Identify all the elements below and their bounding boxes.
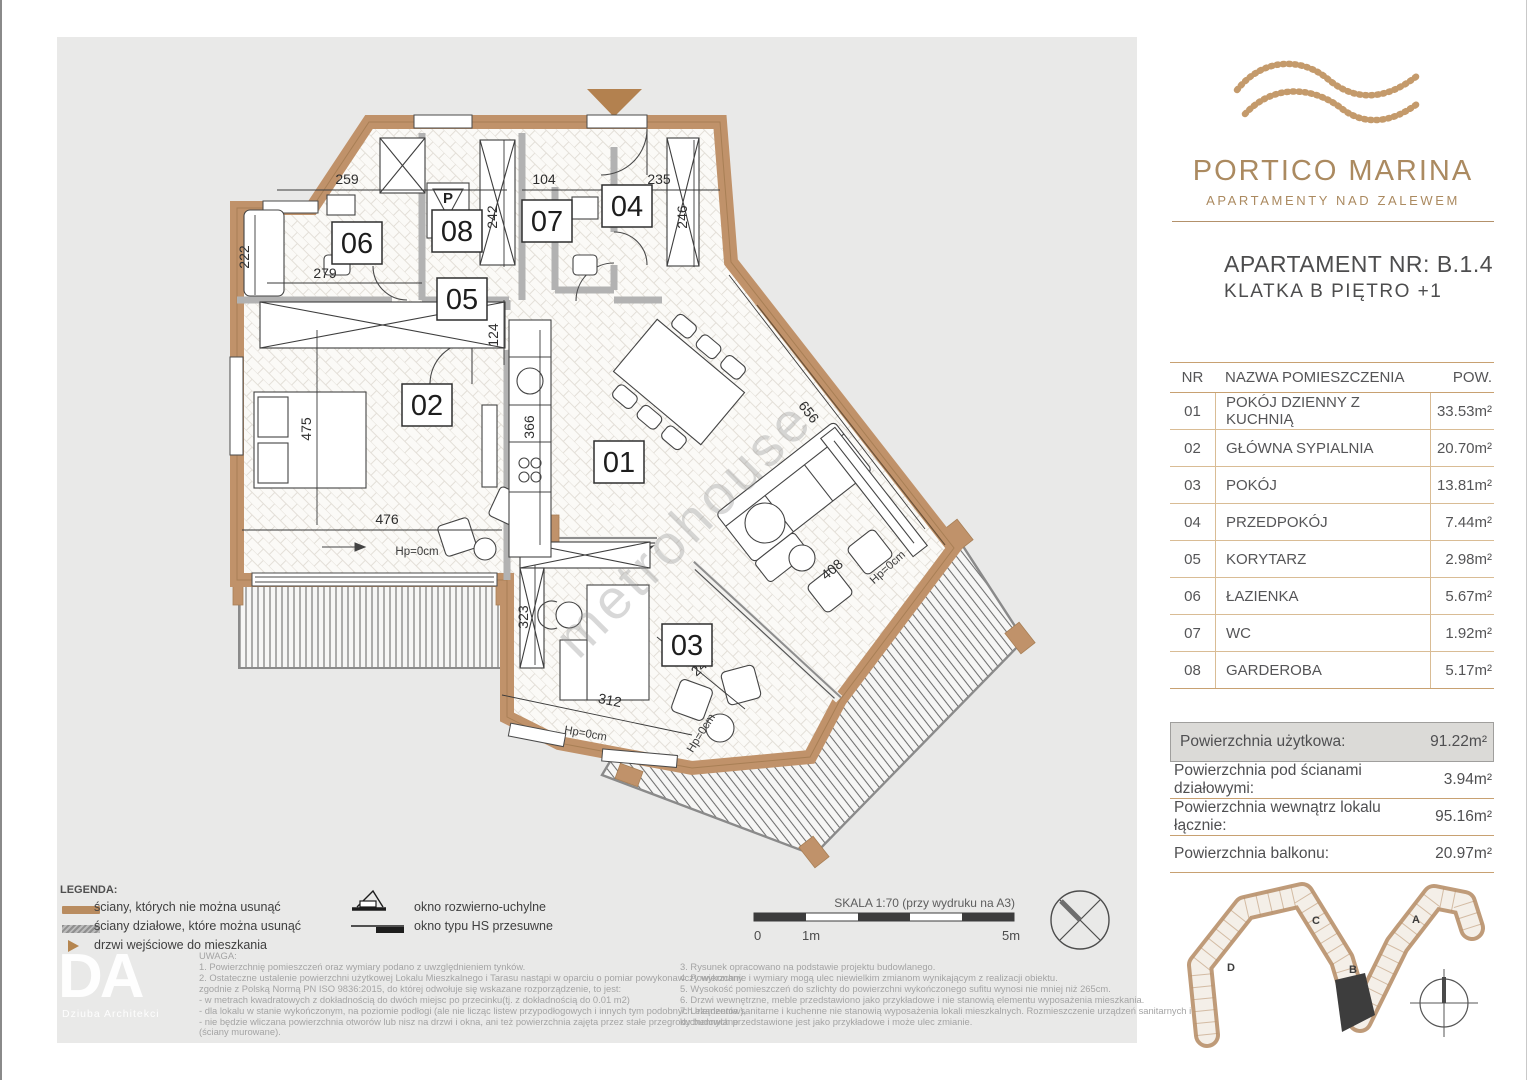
note-line: - dla lokalu w stanie wykończonym, na po… bbox=[199, 1006, 669, 1017]
legend-hs-window: okno typu HS przesuwne bbox=[414, 919, 553, 933]
room-area: 20.70m² bbox=[1430, 430, 1494, 466]
scale-bar: SKALA 1:70 (przy wydruku na A3) 0 1m 5m bbox=[754, 896, 1020, 943]
drawing-panel: P bbox=[57, 37, 1137, 1043]
svg-text:124: 124 bbox=[485, 323, 501, 347]
svg-text:475: 475 bbox=[298, 417, 314, 441]
note-line: - w metrach kwadratowych z dokładnością … bbox=[199, 995, 669, 1006]
architect-name: Dziuba Architekci bbox=[62, 1008, 160, 1020]
area-summary: Powierzchnia użytkowa: 91.22m² Powierzch… bbox=[1170, 722, 1494, 873]
room-nr: 07 bbox=[1170, 615, 1215, 651]
floor-plan-sheet: P bbox=[0, 0, 1527, 1080]
table-row: 03POKÓJ13.81m² bbox=[1170, 467, 1494, 504]
room-area: 33.53m² bbox=[1430, 393, 1494, 429]
svg-text:P: P bbox=[443, 190, 453, 207]
brand-divider bbox=[1172, 221, 1494, 222]
table-row: 08GARDEROBA5.17m² bbox=[1170, 652, 1494, 689]
room-nr: 01 bbox=[1170, 393, 1215, 429]
room-name: POKÓJ bbox=[1215, 467, 1430, 503]
col-header-area: POW. bbox=[1430, 363, 1494, 392]
tilt-window-icon bbox=[350, 888, 390, 912]
summary-label: Powierzchnia wewnątrz lokalu łącznie: bbox=[1174, 799, 1435, 835]
summary-label: Powierzchnia użytkowa: bbox=[1180, 733, 1345, 751]
balcony-left bbox=[233, 583, 506, 668]
section-b-label: B bbox=[1349, 964, 1357, 976]
room-name: KORYTARZ bbox=[1215, 541, 1430, 577]
table-row: 07WC1.92m² bbox=[1170, 615, 1494, 652]
svg-text:279: 279 bbox=[313, 265, 337, 281]
svg-text:07: 07 bbox=[531, 206, 563, 238]
summary-value: 95.16m² bbox=[1435, 808, 1492, 826]
room-area: 5.67m² bbox=[1430, 578, 1494, 614]
legend-partition-walls: ściany działowe, które można usunąć bbox=[94, 919, 301, 933]
room-area: 13.81m² bbox=[1430, 467, 1494, 503]
section-c-label: C bbox=[1312, 915, 1320, 927]
table-row: 05KORYTARZ2.98m² bbox=[1170, 541, 1494, 578]
summary-internal-area: Powierzchnia wewnątrz lokalu łącznie: 95… bbox=[1170, 799, 1494, 836]
summary-value: 3.94m² bbox=[1444, 771, 1492, 789]
room-area: 1.92m² bbox=[1430, 615, 1494, 651]
summary-label: Powierzchnia pod ścianami działowymi: bbox=[1174, 762, 1444, 798]
svg-text:06: 06 bbox=[341, 228, 373, 260]
brand-logo-waves-icon bbox=[1229, 48, 1425, 138]
svg-text:1m: 1m bbox=[802, 928, 820, 943]
svg-text:Hp=0cm: Hp=0cm bbox=[395, 546, 438, 558]
svg-text:246: 246 bbox=[674, 205, 690, 229]
rooms-table: NR NAZWA POMIESZCZENIA POW. 01POKÓJ DZIE… bbox=[1170, 362, 1494, 689]
svg-text:323: 323 bbox=[515, 605, 531, 629]
room-name: PRZEDPOKÓJ bbox=[1215, 504, 1430, 540]
note-line: 6. Drzwi wewnętrzne, meble przedstawiono… bbox=[680, 995, 1140, 1006]
room-nr: 05 bbox=[1170, 541, 1215, 577]
svg-text:242: 242 bbox=[484, 205, 500, 229]
svg-text:5m: 5m bbox=[1002, 928, 1020, 943]
apartment-stairwell-floor: KLATKA B PIĘTRO +1 bbox=[1224, 281, 1442, 303]
site-compass-icon bbox=[1410, 969, 1478, 1037]
svg-text:02: 02 bbox=[411, 390, 443, 422]
notes-column-1: 1. Powierzchnię pomieszczeń oraz wymiary… bbox=[199, 962, 669, 1038]
svg-text:476: 476 bbox=[375, 511, 399, 527]
svg-text:0: 0 bbox=[754, 928, 761, 943]
svg-text:03: 03 bbox=[671, 630, 703, 662]
svg-text:05: 05 bbox=[446, 284, 478, 316]
brand-tagline: APARTAMENTY NAD ZALEWEM bbox=[1172, 193, 1494, 208]
table-row: 01POKÓJ DZIENNY Z KUCHNIĄ33.53m² bbox=[1170, 393, 1494, 430]
col-header-name: NAZWA POMIESZCZENIA bbox=[1215, 363, 1430, 392]
legend-title: LEGENDA: bbox=[60, 884, 117, 896]
room-area: 2.98m² bbox=[1430, 541, 1494, 577]
room-name: ŁAZIENKA bbox=[1215, 578, 1430, 614]
legend-fixed-walls: ściany, których nie można usunąć bbox=[94, 900, 281, 914]
entrance-arrow-icon bbox=[587, 89, 642, 117]
room-nr: 06 bbox=[1170, 578, 1215, 614]
room-name: POKÓJ DZIENNY Z KUCHNIĄ bbox=[1215, 393, 1430, 429]
col-header-nr: NR bbox=[1170, 363, 1215, 392]
table-row: 04PRZEDPOKÓJ7.44m² bbox=[1170, 504, 1494, 541]
compass-icon bbox=[1051, 891, 1109, 949]
note-line: kuchennych przedstawione jest jako przyk… bbox=[680, 1017, 1140, 1028]
summary-label: Powierzchnia balkonu: bbox=[1174, 845, 1329, 863]
room-name: WC bbox=[1215, 615, 1430, 651]
brand-name: PORTICO MARINA bbox=[1172, 155, 1494, 188]
note-line: 7. Urządzenia sanitarne i kuchenne nie s… bbox=[680, 1006, 1140, 1017]
hs-window-icon bbox=[350, 922, 406, 934]
section-d-label: D bbox=[1227, 962, 1235, 974]
summary-partition-area: Powierzchnia pod ścianami działowymi: 3.… bbox=[1170, 762, 1494, 799]
section-a-label: A bbox=[1412, 914, 1420, 926]
room-nr: 04 bbox=[1170, 504, 1215, 540]
room-area: 7.44m² bbox=[1430, 504, 1494, 540]
summary-usable-area: Powierzchnia użytkowa: 91.22m² bbox=[1170, 722, 1494, 762]
table-row: 02GŁÓWNA SYPIALNIA20.70m² bbox=[1170, 430, 1494, 467]
svg-text:SKALA 1:70 (przy wydruku na A3: SKALA 1:70 (przy wydruku na A3) bbox=[834, 896, 1015, 910]
summary-value: 91.22m² bbox=[1430, 733, 1487, 751]
svg-text:259: 259 bbox=[335, 171, 359, 187]
room-nr: 02 bbox=[1170, 430, 1215, 466]
building-site-map: A B C D bbox=[1187, 880, 1507, 1060]
room-nr: 08 bbox=[1170, 652, 1215, 688]
rooms-table-header: NR NAZWA POMIESZCZENIA POW. bbox=[1170, 362, 1494, 393]
room-name: GARDEROBA bbox=[1215, 652, 1430, 688]
svg-text:04: 04 bbox=[611, 191, 643, 223]
floor-plan-drawing: P bbox=[57, 37, 1137, 1043]
svg-text:104: 104 bbox=[532, 171, 556, 187]
table-row: 06ŁAZIENKA5.67m² bbox=[1170, 578, 1494, 615]
summary-value: 20.97m² bbox=[1435, 845, 1492, 863]
svg-text:01: 01 bbox=[603, 447, 635, 479]
apartment-number: APARTAMENT NR: B.1.4 bbox=[1224, 251, 1493, 278]
room-nr: 03 bbox=[1170, 467, 1215, 503]
svg-text:222: 222 bbox=[236, 245, 252, 269]
architect-logo: DA bbox=[58, 948, 142, 1006]
summary-balcony-area: Powierzchnia balkonu: 20.97m² bbox=[1170, 836, 1494, 873]
room-name: GŁÓWNA SYPIALNIA bbox=[1215, 430, 1430, 466]
notes-column-2: 3. Rysunek opracowano na podstawie proje… bbox=[680, 962, 1140, 1027]
room-area: 5.17m² bbox=[1430, 652, 1494, 688]
svg-text:366: 366 bbox=[521, 415, 537, 439]
note-line: (ściany murowane). bbox=[199, 1027, 669, 1038]
svg-text:08: 08 bbox=[441, 216, 473, 248]
legend-tilt-window: okno rozwierno-uchylne bbox=[414, 900, 546, 914]
